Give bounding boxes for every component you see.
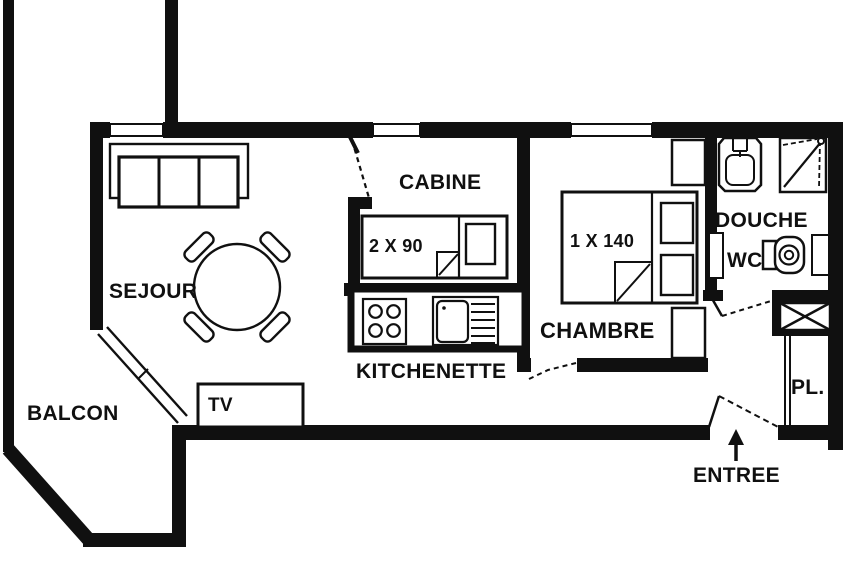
douche-door-swing — [722, 301, 771, 316]
wall-cabine-stub — [348, 197, 372, 209]
window-cabine — [373, 124, 420, 136]
chambre-bed-pillow — [661, 255, 693, 295]
toilet-inner — [785, 251, 793, 259]
shower-head — [818, 138, 824, 144]
wall-balcony-left — [3, 0, 14, 452]
washbasin-bowl — [726, 155, 754, 185]
wall-cabine-left — [348, 209, 360, 289]
window-chambre — [571, 124, 652, 136]
wall-top — [90, 122, 843, 138]
chambre-nightstand-top — [672, 140, 705, 185]
window-sejour — [110, 124, 163, 136]
entree-door-leaf — [709, 396, 719, 427]
cabine-bed-pillow — [466, 224, 495, 264]
entree-arrow-head — [728, 429, 744, 445]
label-tv: TV — [208, 395, 233, 416]
label-entree: ENTREE — [693, 464, 780, 487]
wall-chambre-bottom — [577, 358, 708, 372]
label-sejour: SEJOUR — [109, 280, 197, 303]
kitchenette-block — [351, 289, 525, 349]
wall-chambre-bottom-stub — [517, 358, 531, 372]
stove — [363, 299, 406, 344]
label-cabine: CABINE — [399, 171, 481, 194]
chambre-door-swing — [529, 363, 576, 379]
label-placard: PL. — [791, 376, 825, 399]
entree-arrow — [728, 429, 744, 461]
sink-basin — [437, 301, 468, 342]
balcony-sliding-door-tick — [139, 369, 148, 378]
wall-balcony-bottom — [83, 533, 183, 547]
stove-burner — [369, 305, 382, 318]
wall-right — [828, 122, 843, 450]
label-wc: WC — [727, 249, 763, 272]
placard-door-line — [784, 336, 786, 425]
label-douche: DOUCHE — [715, 209, 808, 232]
stove-burner — [387, 305, 400, 318]
cabine-door-swing — [352, 140, 369, 198]
window-right-wall — [812, 235, 829, 275]
label-chambre-bed-size: 1 X 140 — [570, 231, 634, 251]
wall-balcony-right-upper — [165, 0, 178, 127]
dining-table — [194, 244, 280, 330]
wall-balcony-diagonal — [8, 449, 89, 540]
sofa-seat — [119, 157, 238, 207]
label-kitchenette: KITCHENETTE — [356, 360, 506, 383]
label-chambre: CHAMBRE — [540, 318, 655, 343]
floor-plan-canvas: BALCON SEJOUR CABINE KITCHENETTE CHAMBRE… — [0, 0, 848, 565]
label-balcon: BALCON — [27, 402, 119, 425]
wc-door-leaf — [709, 233, 723, 278]
wall-bottom-right-segment — [778, 425, 843, 440]
entree-door-swing — [719, 396, 780, 428]
balcony-sliding-door — [107, 327, 187, 416]
stove-burner — [369, 324, 382, 337]
wall-balcony-right-lower — [172, 425, 186, 547]
label-cabine-bed-size: 2 X 90 — [369, 236, 423, 256]
wall-sejour-left — [90, 122, 103, 330]
floor-plan-svg: BALCON SEJOUR CABINE KITCHENETTE CHAMBRE… — [0, 0, 848, 565]
stove-burner — [387, 324, 400, 337]
sink-tap — [442, 306, 446, 310]
chambre-bed-pillow — [661, 203, 693, 243]
chambre-nightstand-bottom — [672, 308, 705, 358]
